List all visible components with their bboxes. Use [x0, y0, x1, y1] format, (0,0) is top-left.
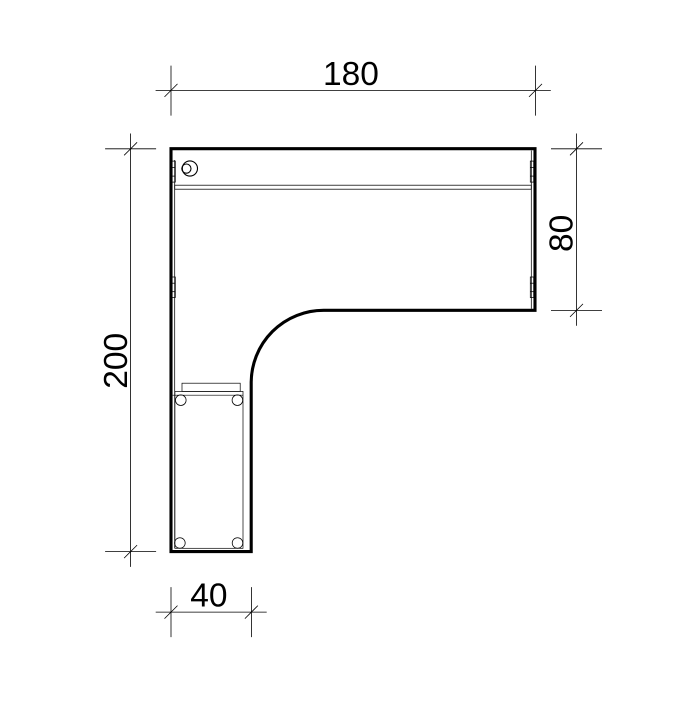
svg-text:200: 200: [98, 333, 135, 389]
svg-text:80: 80: [544, 215, 581, 252]
svg-text:180: 180: [323, 56, 379, 93]
svg-text:40: 40: [190, 578, 227, 615]
